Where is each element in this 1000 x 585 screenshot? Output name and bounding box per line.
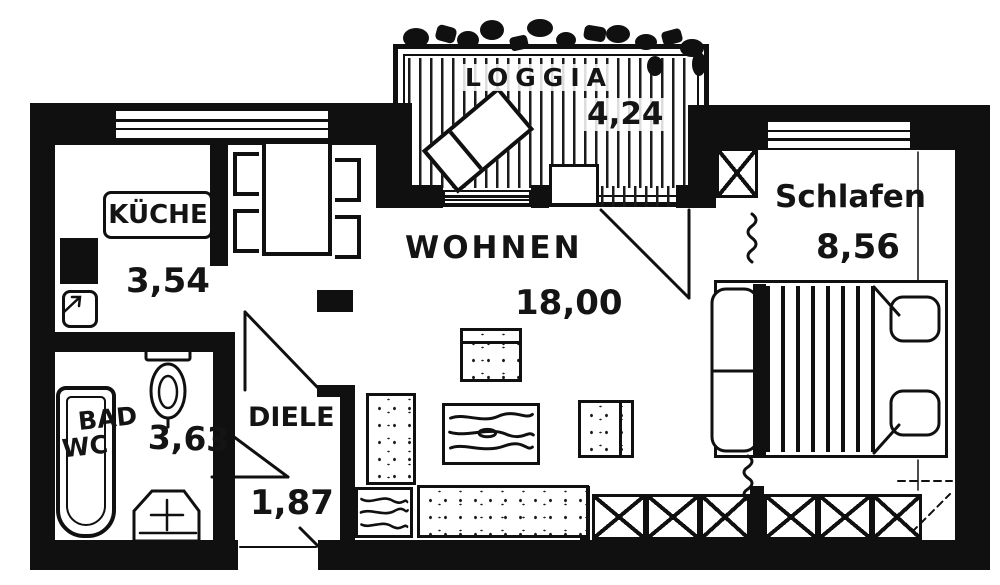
dining-table-symbol — [262, 140, 332, 256]
wall-post-wardrobe — [750, 486, 764, 540]
living-room-label: WOHNEN — [405, 233, 583, 264]
loggia-area-label: 4,24 — [584, 98, 667, 131]
shaft-x-symbol — [716, 148, 758, 198]
armchair-backrest-line — [463, 341, 519, 344]
bath-label-wc: WC — [61, 432, 109, 462]
living-area-label: 18,00 — [515, 286, 623, 320]
sofa-vertical-symbol — [366, 393, 416, 485]
floor-plan: LOGGIA 4,24 KÜCHE 3,54 WOHNEN 18,00 Schl… — [0, 0, 1000, 585]
wall-break-squiggle — [748, 214, 756, 262]
wall-column-loggia-left — [376, 145, 412, 208]
washbasin-symbol — [134, 491, 199, 541]
toilet-bowl-symbol — [151, 364, 185, 418]
wall-left — [30, 103, 55, 570]
wall-bottom-left — [30, 540, 238, 570]
wardrobe-x-symbol — [818, 494, 872, 540]
wall-bottom-right — [318, 540, 990, 570]
wardrobe-x-symbol — [872, 494, 922, 540]
armchair-armrest-line — [619, 403, 622, 455]
coffee-table-symbol — [442, 403, 540, 465]
wall-stub-wohnen-diele — [317, 290, 353, 312]
kitchen-label-box: KÜCHE — [103, 191, 213, 239]
loggia-room-label: LOGGIA — [462, 64, 616, 91]
armchair-symbol — [460, 328, 522, 382]
wood-grain — [358, 490, 410, 535]
entrance-door-opening — [238, 540, 318, 570]
toilet-bowl-inner — [159, 376, 177, 408]
wardrobe-x-symbol — [646, 494, 700, 540]
wall-bath-top — [55, 332, 215, 352]
wall-right — [955, 105, 990, 570]
armchair-symbol — [578, 400, 634, 458]
stove-symbol — [60, 238, 98, 284]
bath-label-bad: BAD — [77, 403, 138, 434]
bedroom-area-label: 8,56 — [816, 230, 900, 264]
sofa-horizontal-symbol — [417, 485, 589, 538]
wardrobe-x-symbol — [700, 494, 750, 540]
bedroom-label: Schlafen — [775, 182, 926, 213]
kitchen-window — [116, 111, 328, 138]
bed-duvet-stripes — [766, 286, 878, 452]
wall-diele-wohnen — [340, 385, 355, 540]
dining-chair-symbol — [233, 209, 259, 253]
hall-label: DIELE — [248, 404, 335, 431]
dining-chair-symbol — [335, 215, 361, 259]
side-table-symbol — [355, 487, 413, 538]
dining-chair-symbol — [335, 158, 361, 202]
loggia-door-opening-hatch — [601, 186, 675, 207]
loggia-glass-door-panel — [549, 164, 599, 206]
dining-chair-symbol — [233, 152, 259, 196]
kitchen-area-label: 3,54 — [126, 264, 210, 298]
wardrobe-x-symbol — [592, 494, 646, 540]
kitchen-room-label: KÜCHE — [108, 202, 207, 228]
bedroom-window — [768, 122, 910, 148]
wardrobe-x-symbol — [764, 494, 818, 540]
diele-door-swing — [245, 312, 320, 390]
hall-area-label: 1,87 — [250, 486, 334, 520]
lounge-chair-backrest-line — [449, 131, 483, 170]
bath-area-label: 3,63 — [147, 421, 230, 457]
wood-grain — [445, 406, 537, 462]
loggia-boundary-wall-2 — [531, 185, 549, 208]
kitchen-sink-symbol — [62, 290, 98, 328]
